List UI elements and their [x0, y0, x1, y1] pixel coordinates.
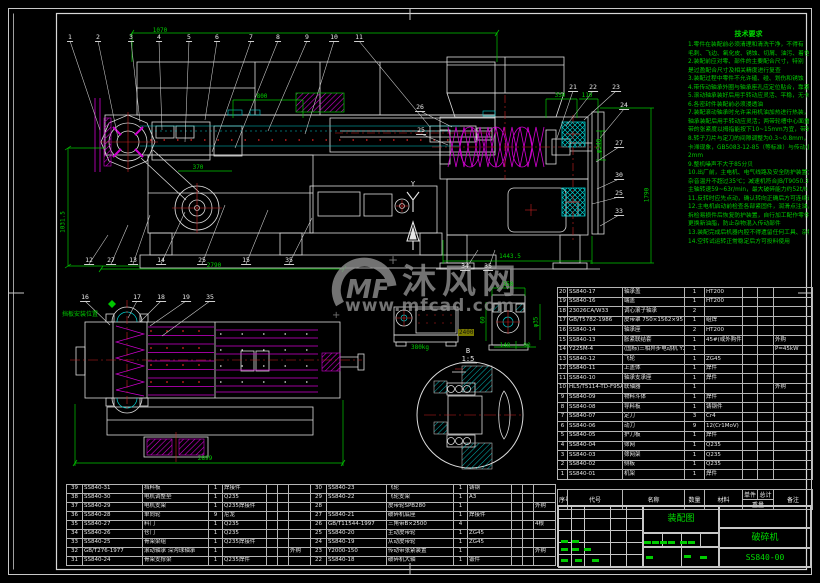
bom-row: 6SS840-06动刀912(Cr1MoV)	[558, 422, 813, 432]
view-detail	[394, 295, 528, 469]
balloon-25: 25	[197, 256, 207, 265]
balloon-13: 13	[128, 256, 138, 265]
drawing-type: 装配图	[643, 506, 719, 533]
bom-row: 23Y2000-150传动带张紧装置1外购	[311, 548, 556, 557]
balloon-14: 14	[156, 256, 166, 265]
bom-row: 1SS840-01机架1焊件	[558, 470, 813, 480]
note-line: 拆检易损件后恢复防护装置，自行加工配作零件须经检验合格后装机，	[688, 212, 809, 221]
signature-mark	[561, 540, 568, 543]
balloon-7: 7	[248, 33, 254, 42]
signature-mark	[668, 541, 675, 544]
note-line: 更换新油脂，防止杂物混入传动部件	[688, 220, 809, 229]
note-line: 轴承装配后用手转动应灵活；两带轮槽中心面重合度不少于1mm，	[688, 118, 809, 127]
balloon-5: 5	[186, 33, 192, 42]
drawing-number: SS840-00	[719, 548, 811, 568]
note-line: 7.装配滚动轴承时允许采用机油加热进行热装，油温不得超过100℃，	[688, 109, 809, 118]
balloon-21: 21	[568, 83, 578, 92]
note-line: 2.装配前应对零、部件的主要配合尺寸，特别	[688, 58, 809, 67]
signature-mark	[592, 559, 599, 562]
balloon-16: 16	[80, 293, 90, 302]
detail-weight: 380kg	[411, 344, 429, 351]
note-line: 4.带传动轴承外圈与轴承座孔应定位贴合，靠紧轴肩	[688, 84, 809, 93]
balloon-35: 35	[205, 293, 215, 302]
balloon-1: 1	[67, 33, 73, 42]
note-line: 12.主电机启动前检查各部紧固件，润滑点注油，机内不得有杂物，	[688, 203, 809, 212]
projection-symbols	[407, 192, 419, 250]
signature-mark	[575, 559, 582, 562]
bom-row: 15SS840-13胀紧联结套145#(或外购件)外购	[558, 335, 813, 345]
signature-mark	[644, 541, 651, 544]
bom-row: 19SS840-16端盖1HT200	[558, 297, 813, 307]
note-line: 13.装配完成后机器内腔不得遗留任何工具、杂物	[688, 229, 809, 238]
bom-row: 12SS840-11上盖体1焊件	[558, 364, 813, 374]
dim-detail-v2b2: 90	[523, 342, 530, 349]
signature-mark	[572, 540, 579, 543]
bom-row: 27SS840-21破碎机底座1焊接件	[311, 512, 556, 521]
signature-mark	[680, 541, 687, 544]
dim-side-dia: φ340	[596, 139, 603, 153]
signature-mark	[561, 548, 568, 551]
balloon-10: 10	[329, 33, 339, 42]
balloon-6: 6	[214, 33, 220, 42]
bom-row: 38SS840-30电机调整垫1Q235	[67, 494, 311, 503]
side-axis-label: Y	[411, 180, 415, 188]
signature-mark	[700, 556, 707, 559]
balloon-26: 26	[415, 103, 425, 112]
dim-front-inner: 800	[257, 93, 268, 100]
notes-title: 技术要求	[688, 29, 809, 39]
bom-row: 5SS840-05护刀板1焊件	[558, 431, 813, 441]
dim-front-bottom: 2790	[207, 262, 221, 269]
product-name: 破碎机	[719, 528, 811, 548]
bom-row: 22SS840-18破碎机大轴1锻件	[311, 557, 556, 566]
dim-front-mid: 370	[193, 164, 204, 171]
dim-side-right: 1790	[644, 188, 651, 202]
dim-side-t2: 110	[582, 92, 593, 99]
note-line: 14.空转试运转正常稳定后方可投料使用	[688, 238, 809, 247]
detail-scale: 1:5	[462, 355, 475, 363]
detail-label: B	[466, 347, 470, 355]
balloon-35: 35	[483, 262, 493, 271]
technical-notes: 技术要求 1.零件在装配前必须清理和清洗干净，不得有毛刺、飞边、氧化皮、锈蚀、切…	[688, 29, 809, 246]
view-front-elevation	[95, 62, 498, 268]
note-line: 11.反转时应先点动，确认转向正确后方可连续运转	[688, 195, 809, 204]
detail-highlight: 2400	[458, 329, 474, 336]
bom-row: 24SS840-19从动皮带轮1ZG45	[311, 539, 556, 548]
bom-row: 39SS840-31挡料板1焊接件	[67, 485, 311, 494]
balloon-27: 27	[614, 139, 624, 148]
bom-row: 33SS840-25骨架梁组1Q235焊接件	[67, 539, 311, 548]
bom-table-bottom-right: 30SS840-23飞轮1铸钢29SS840-22飞轮支架1A328皮带轮SPB…	[310, 484, 556, 566]
balloon-33: 33	[614, 207, 624, 216]
balloon-2: 2	[95, 33, 101, 42]
dim-detail-v2top: 350	[503, 281, 514, 288]
bom-row: 36SS840-28单向轮9尼龙	[67, 512, 311, 521]
balloon-25: 25	[416, 126, 426, 135]
dim-side-t1: 350	[555, 92, 566, 99]
bom-row: 3SS840-03筛网架1Q235	[558, 451, 813, 461]
signature-mark	[572, 548, 579, 551]
signature-mark	[652, 541, 659, 544]
balloon-35: 35	[284, 256, 294, 265]
bom-row: 1823026CA/W33调心滚子轴承2	[558, 307, 813, 317]
signature-mark	[688, 541, 695, 544]
bom-row: 2SS840-02侧板1Q235	[558, 460, 813, 470]
bom-row: 35SS840-27料门1Q235	[67, 521, 311, 530]
title-empty-cell	[719, 506, 811, 528]
bom-row: 4SS840-04筛网1Q235	[558, 441, 813, 451]
bom-table-bottom-left: 39SS840-31挡料板1焊接件38SS840-30电机调整垫1Q23537S…	[66, 484, 311, 566]
bom-row: 9SS840-09物料斗体1焊件	[558, 393, 813, 403]
bom-row: 32GB/T276-1977滚动轴承 深沟球轴承1外购	[67, 548, 311, 557]
balloon-3: 3	[128, 33, 134, 42]
balloon-18: 18	[156, 293, 166, 302]
balloon-11: 11	[354, 33, 364, 42]
bom-row: 10HL5/T5114-TD-F95A联轴器1外购	[558, 383, 813, 393]
bom-row: 8SS840-08导料板1铸钢件	[558, 403, 813, 413]
note-line: 杂音温升不超过35℃；减速机符合JB/T9050.3-1999规定	[688, 178, 809, 187]
dim-plan-bottom: 2899	[198, 455, 212, 462]
note-line: 2mm	[688, 152, 809, 161]
note-line: 卡滞现象，GB5083-12-85（等标准）与传动小车间隙间隔	[688, 144, 809, 153]
note-line: 10.出厂前，主电机、电气线路及安全防护装置；空载试运转应平稳，	[688, 169, 809, 178]
view-plan	[70, 300, 364, 462]
balloon-19: 19	[181, 293, 191, 302]
signature-mark	[660, 541, 667, 544]
balloon-27: 27	[106, 256, 116, 265]
balloon-15: 15	[241, 256, 251, 265]
dim-detail-v2left: 60	[480, 316, 487, 323]
note-line: 毛刺、飞边、氧化皮、锈蚀、切屑、油污、着色剂和灰尘等	[688, 50, 809, 59]
balloon-30: 30	[614, 171, 624, 180]
bom-table-right: 20SS840-17轴承盖1HT20019SS840-16端盖1HT200182…	[557, 287, 813, 480]
callout-leaders	[70, 41, 624, 336]
bom-row: 25SS840-20主动皮带轮1ZG45	[311, 530, 556, 539]
signature-mark	[646, 556, 653, 559]
dim-side-bottom: 1443.5	[499, 253, 521, 260]
bom-row: 34SS840-26仓门1Q235	[67, 530, 311, 539]
balloon-22: 22	[588, 83, 598, 92]
plan-annotation: 挡板安装位置	[62, 309, 98, 318]
note-line: 8.转子刀片与定刀的间隙调整为0.3~0.8mm，调整时刀刃不得相碰，不得有	[688, 135, 809, 144]
bom-row: 30SS840-23飞轮1铸钢	[311, 485, 556, 494]
bom-row: 31SS840-24骨架支撑梁1Q235焊件	[67, 557, 311, 566]
bom-row: 13SS840-12飞轮1ZG45	[558, 355, 813, 365]
bom-row: 7SS840-07定刀3Cr4	[558, 412, 813, 422]
bom-row: 17GB/T5782-1986皮带罩 750×1562×951组焊	[558, 316, 813, 326]
note-line: 1.零件在装配前必须清理和清洗干净，不得有	[688, 41, 809, 50]
balloon-4: 4	[156, 33, 162, 42]
bom-row: 14Y225M-4(国标)三相异步电动机 Y225M1P=45kW	[558, 345, 813, 355]
dim-front-top: 1070	[153, 27, 167, 34]
dim-detail-v2b1: 140	[500, 342, 511, 349]
bom-row: 20SS840-17轴承盖1HT200	[558, 288, 813, 298]
balloon-12: 12	[84, 256, 94, 265]
balloon-17: 17	[132, 293, 142, 302]
note-line: 主轴转速59~63r/min，最大破碎能力约52t/h	[688, 186, 809, 195]
dim-front-left: 1031.5	[60, 211, 67, 233]
balloon-8: 8	[275, 33, 281, 42]
note-line: 3.装配过程中零件不允许磕、碰、划伤和锈蚀	[688, 75, 809, 84]
balloon-34: 34	[460, 262, 470, 271]
bom-row: 29SS840-22飞轮支架1A3	[311, 494, 556, 503]
note-line: 带的张紧度以拇指能按下10~15mm为宜，带轮装配后应进行静平衡	[688, 126, 809, 135]
dim-detail-v2dia: φ35	[533, 317, 540, 328]
bom-row: 11SS840-10轴承支承座1焊件	[558, 374, 813, 384]
note-line: 9.整机噪声不大于85分贝	[688, 161, 809, 170]
bom-row: 16SS840-14轴承座2HT200	[558, 326, 813, 336]
signature-mark	[684, 555, 691, 558]
bom-row: 28皮带轮SPB2801外购	[311, 503, 556, 512]
signature-mark	[584, 548, 591, 551]
balloon-25: 25	[614, 189, 624, 198]
balloon-24: 24	[619, 101, 629, 110]
note-line: 6.各密封件装配前必须浸透油	[688, 101, 809, 110]
signature-mark	[561, 559, 568, 562]
balloon-9: 9	[304, 33, 310, 42]
note-line: 是过盈配合尺寸及相关精度进行复查	[688, 67, 809, 76]
bom-row: 37SS840-29电机支架1Q235焊接件	[67, 503, 311, 512]
drawing-sheet[interactable]: MF + + 沐风网 www.mfcad.com 技术要求 1.零件在装配前必须…	[0, 0, 820, 583]
note-line: 5.滚动轴承装好后用手转动应灵活、平稳，无卡滞	[688, 92, 809, 101]
bom-row: 26GB/T11544-1997三角带B×250044根	[311, 521, 556, 530]
balloon-23: 23	[611, 83, 621, 92]
